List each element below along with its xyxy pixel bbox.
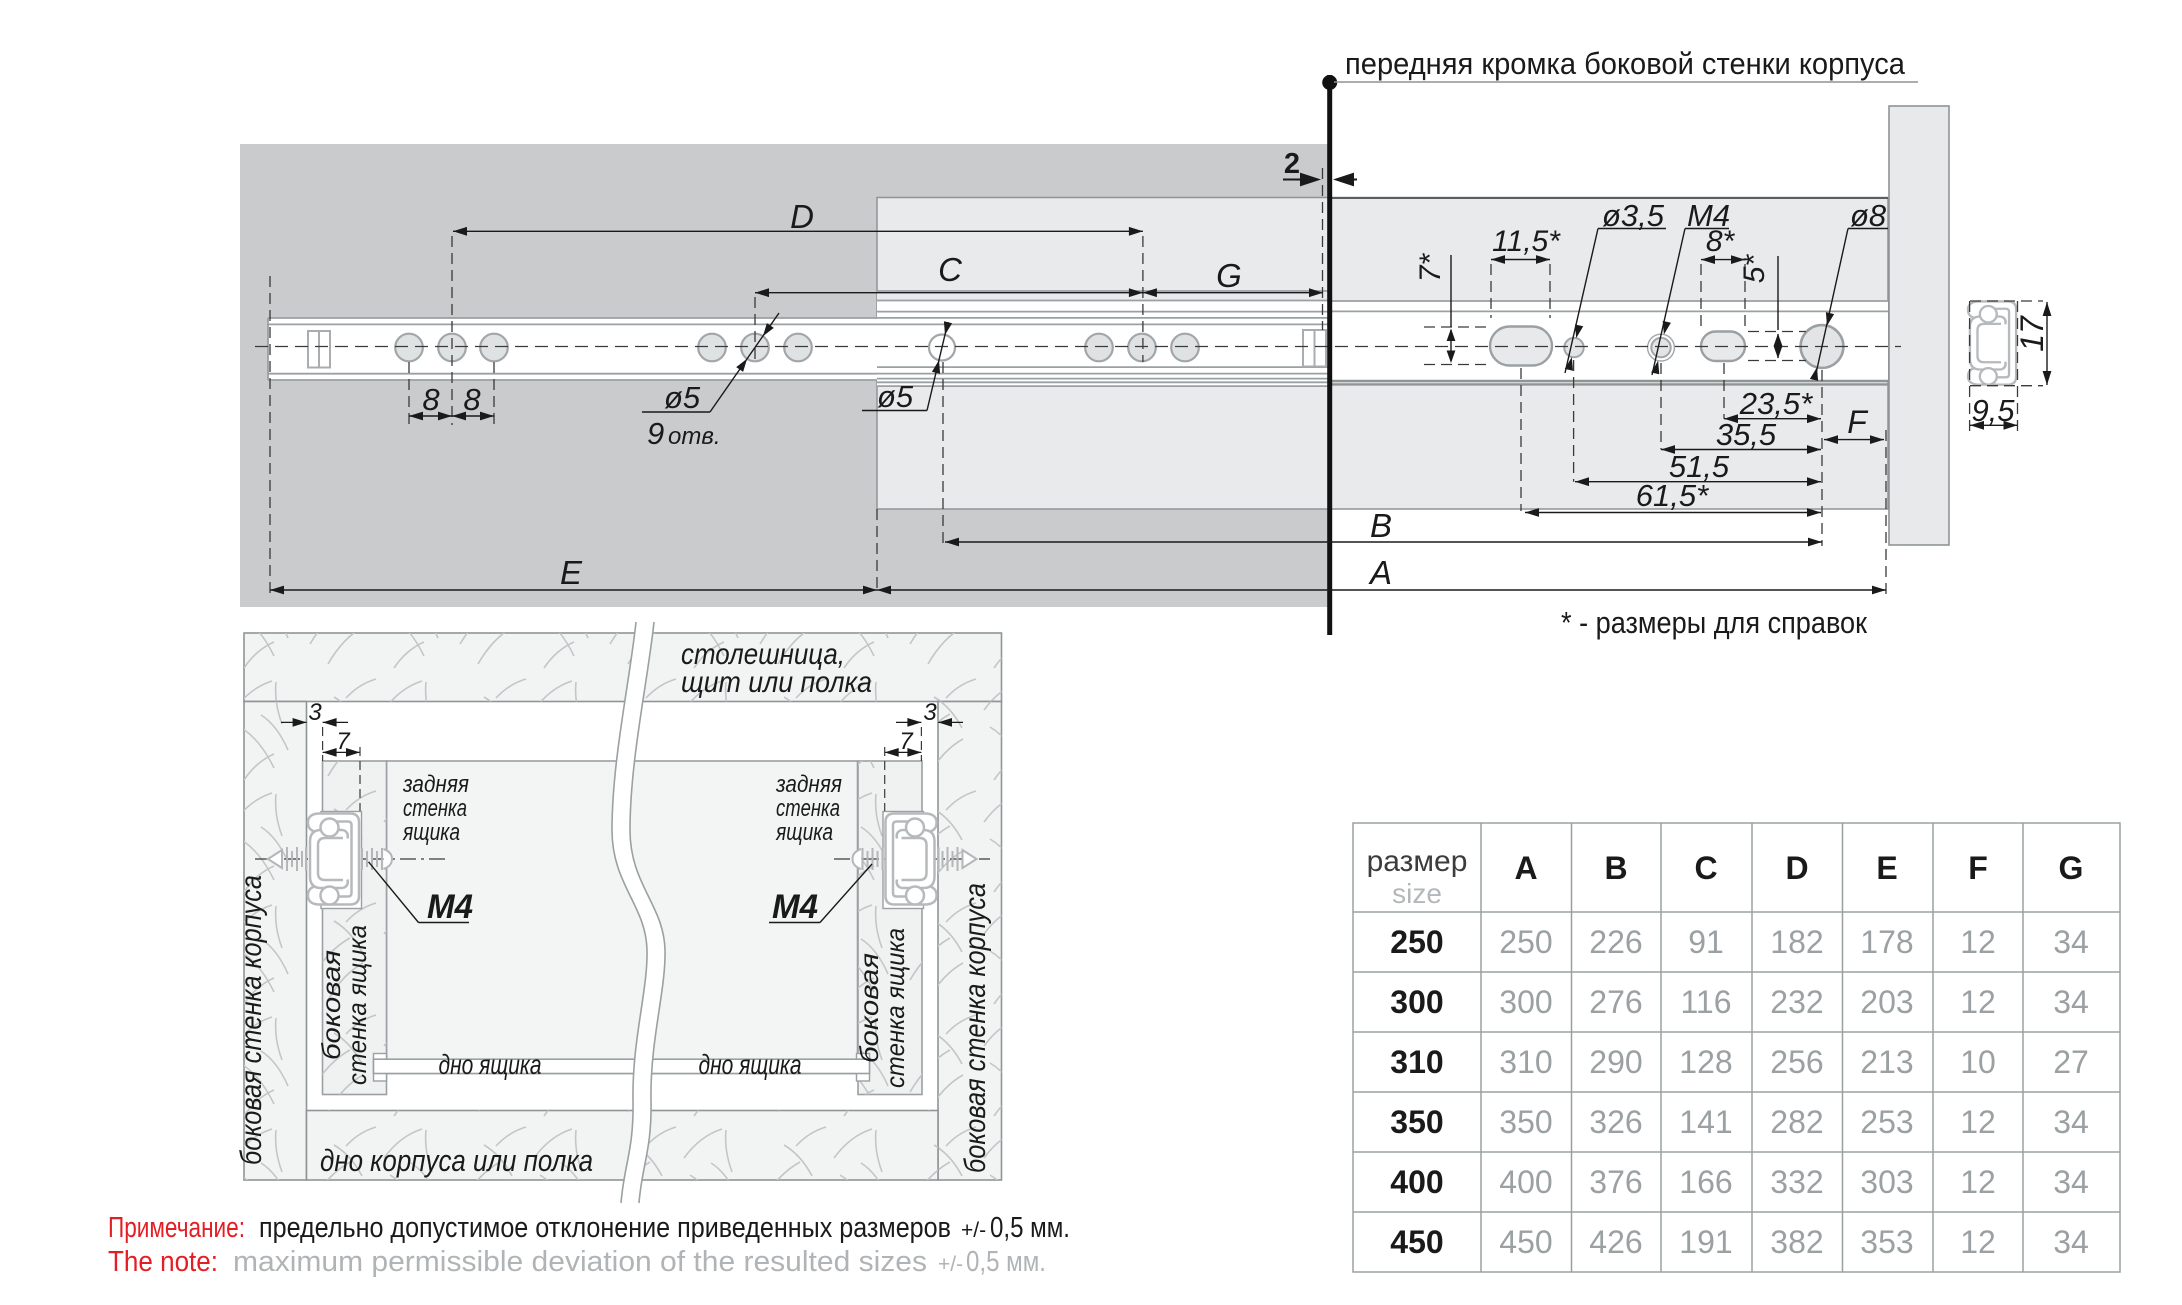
svg-text:дно корпуса или полка: дно корпуса или полка <box>320 1143 593 1178</box>
svg-text:дно ящика: дно ящика <box>439 1049 542 1080</box>
svg-text:The note:: The note: <box>108 1246 218 1278</box>
svg-text:213: 213 <box>1860 1044 1913 1080</box>
svg-text:E: E <box>1876 850 1897 886</box>
svg-text:8: 8 <box>422 382 440 417</box>
svg-text:376: 376 <box>1589 1164 1642 1200</box>
svg-text:332: 332 <box>1770 1164 1823 1200</box>
svg-text:34: 34 <box>2053 924 2089 960</box>
svg-text:M4: M4 <box>772 888 818 926</box>
svg-text:стенка ящика: стенка ящика <box>342 925 372 1085</box>
svg-text:B: B <box>1604 850 1627 886</box>
svg-text:M4: M4 <box>427 888 473 926</box>
svg-text:250: 250 <box>1390 924 1443 960</box>
svg-text:дно ящика: дно ящика <box>699 1049 802 1080</box>
svg-text:7: 7 <box>899 728 914 755</box>
svg-text:ящика: ящика <box>775 819 833 846</box>
svg-text:боковая стенка корпуса: боковая стенка корпуса <box>235 875 268 1165</box>
svg-text:34: 34 <box>2053 1104 2089 1140</box>
svg-text:A: A <box>1514 850 1537 886</box>
svg-text:D: D <box>790 198 814 235</box>
svg-text:34: 34 <box>2053 984 2089 1020</box>
svg-text:боковая стенка корпуса: боковая стенка корпуса <box>959 883 992 1173</box>
svg-text:стенка: стенка <box>776 795 840 822</box>
svg-text:226: 226 <box>1589 924 1642 960</box>
svg-text:116: 116 <box>1680 984 1731 1020</box>
svg-text:91: 91 <box>1688 924 1724 960</box>
svg-text:отв.: отв. <box>668 423 721 450</box>
svg-text:350: 350 <box>1499 1104 1552 1140</box>
svg-text:303: 303 <box>1860 1164 1913 1200</box>
svg-text:9,5: 9,5 <box>1971 393 2015 428</box>
svg-text:400: 400 <box>1390 1164 1443 1200</box>
svg-text:7*: 7* <box>1414 252 1447 282</box>
svg-text:350: 350 <box>1390 1104 1443 1140</box>
svg-text:10: 10 <box>1960 1044 1996 1080</box>
svg-text:23,5*: 23,5* <box>1739 386 1813 421</box>
svg-text:F: F <box>1847 404 1869 440</box>
svg-text:290: 290 <box>1589 1044 1642 1080</box>
svg-text:M4: M4 <box>1687 198 1730 233</box>
svg-text:+/-: +/- <box>961 1219 986 1242</box>
svg-text:450: 450 <box>1390 1224 1443 1260</box>
svg-text:166: 166 <box>1679 1164 1732 1200</box>
svg-text:12: 12 <box>1960 924 1996 960</box>
svg-text:34: 34 <box>2053 1224 2089 1260</box>
svg-text:382: 382 <box>1770 1224 1823 1260</box>
svg-text:11,5*: 11,5* <box>1492 225 1561 258</box>
svg-text:size: size <box>1392 878 1442 909</box>
svg-text:Примечание:: Примечание: <box>108 1212 245 1244</box>
svg-text:426: 426 <box>1589 1224 1642 1260</box>
svg-text:310: 310 <box>1499 1044 1552 1080</box>
svg-text:27: 27 <box>2053 1044 2089 1080</box>
svg-text:300: 300 <box>1499 984 1552 1020</box>
svg-text:51,5: 51,5 <box>1669 449 1730 484</box>
svg-text:256: 256 <box>1770 1044 1823 1080</box>
svg-text:E: E <box>560 554 583 591</box>
svg-text:17: 17 <box>2014 315 2050 352</box>
svg-text:282: 282 <box>1770 1104 1823 1140</box>
svg-text:G: G <box>2059 850 2084 886</box>
svg-text:400: 400 <box>1499 1164 1552 1200</box>
svg-text:12: 12 <box>1960 1164 1996 1200</box>
svg-text:C: C <box>938 251 963 288</box>
svg-text:B: B <box>1370 507 1392 544</box>
svg-text:141: 141 <box>1679 1104 1732 1140</box>
svg-text:191: 191 <box>1679 1224 1732 1260</box>
svg-text:7: 7 <box>336 728 351 755</box>
svg-text:0,5 мм.: 0,5 мм. <box>966 1246 1046 1278</box>
svg-text:203: 203 <box>1860 984 1913 1020</box>
svg-text:300: 300 <box>1390 984 1443 1020</box>
svg-text:задняя: задняя <box>402 771 469 798</box>
svg-text:0,5 мм.: 0,5 мм. <box>990 1212 1070 1244</box>
svg-text:9: 9 <box>647 416 664 451</box>
svg-text:ø5: ø5 <box>664 380 701 415</box>
svg-text:5*: 5* <box>1738 253 1771 283</box>
svg-text:C: C <box>1694 850 1717 886</box>
svg-text:3: 3 <box>308 699 322 726</box>
svg-text:F: F <box>1968 850 1988 886</box>
svg-text:D: D <box>1785 850 1808 886</box>
svg-text:задняя: задняя <box>775 771 842 798</box>
svg-text:предельно допустимое отклонени: предельно допустимое отклонение приведен… <box>259 1212 951 1244</box>
svg-text:ø3,5: ø3,5 <box>1602 198 1665 233</box>
svg-text:3: 3 <box>923 699 937 726</box>
svg-text:ящика: ящика <box>402 819 460 846</box>
svg-text:128: 128 <box>1679 1044 1732 1080</box>
svg-text:12: 12 <box>1960 1104 1996 1140</box>
svg-text:34: 34 <box>2053 1164 2089 1200</box>
svg-text:12: 12 <box>1960 984 1996 1020</box>
svg-text:ø8: ø8 <box>1850 198 1887 233</box>
svg-text:253: 253 <box>1860 1104 1913 1140</box>
svg-text:326: 326 <box>1589 1104 1642 1140</box>
svg-text:2: 2 <box>1284 148 1300 180</box>
svg-text:35,5: 35,5 <box>1716 417 1777 452</box>
svg-text:12: 12 <box>1960 1224 1996 1260</box>
svg-text:450: 450 <box>1499 1224 1552 1260</box>
svg-text:A: A <box>1368 554 1392 591</box>
svg-text:250: 250 <box>1499 924 1552 960</box>
svg-text:182: 182 <box>1770 924 1823 960</box>
svg-text:310: 310 <box>1390 1044 1443 1080</box>
svg-text:232: 232 <box>1770 984 1823 1020</box>
svg-text:maximum permissible deviation: maximum permissible deviation of the res… <box>233 1246 927 1278</box>
svg-text:стенка ящика: стенка ящика <box>880 928 910 1088</box>
svg-text:* - размеры для справок: * - размеры для справок <box>1561 605 1867 640</box>
svg-text:передняя кромка боковой стенки: передняя кромка боковой стенки корпуса <box>1345 46 1906 81</box>
svg-text:размер: размер <box>1367 845 1468 878</box>
svg-text:178: 178 <box>1860 924 1913 960</box>
svg-text:+/-: +/- <box>938 1253 963 1276</box>
svg-text:276: 276 <box>1589 984 1642 1020</box>
svg-text:стенка: стенка <box>403 795 467 822</box>
svg-text:ø5: ø5 <box>877 379 914 414</box>
svg-text:353: 353 <box>1860 1224 1913 1260</box>
svg-text:G: G <box>1216 257 1242 294</box>
svg-text:8: 8 <box>463 382 481 417</box>
svg-text:щит или полка: щит или полка <box>681 666 872 699</box>
